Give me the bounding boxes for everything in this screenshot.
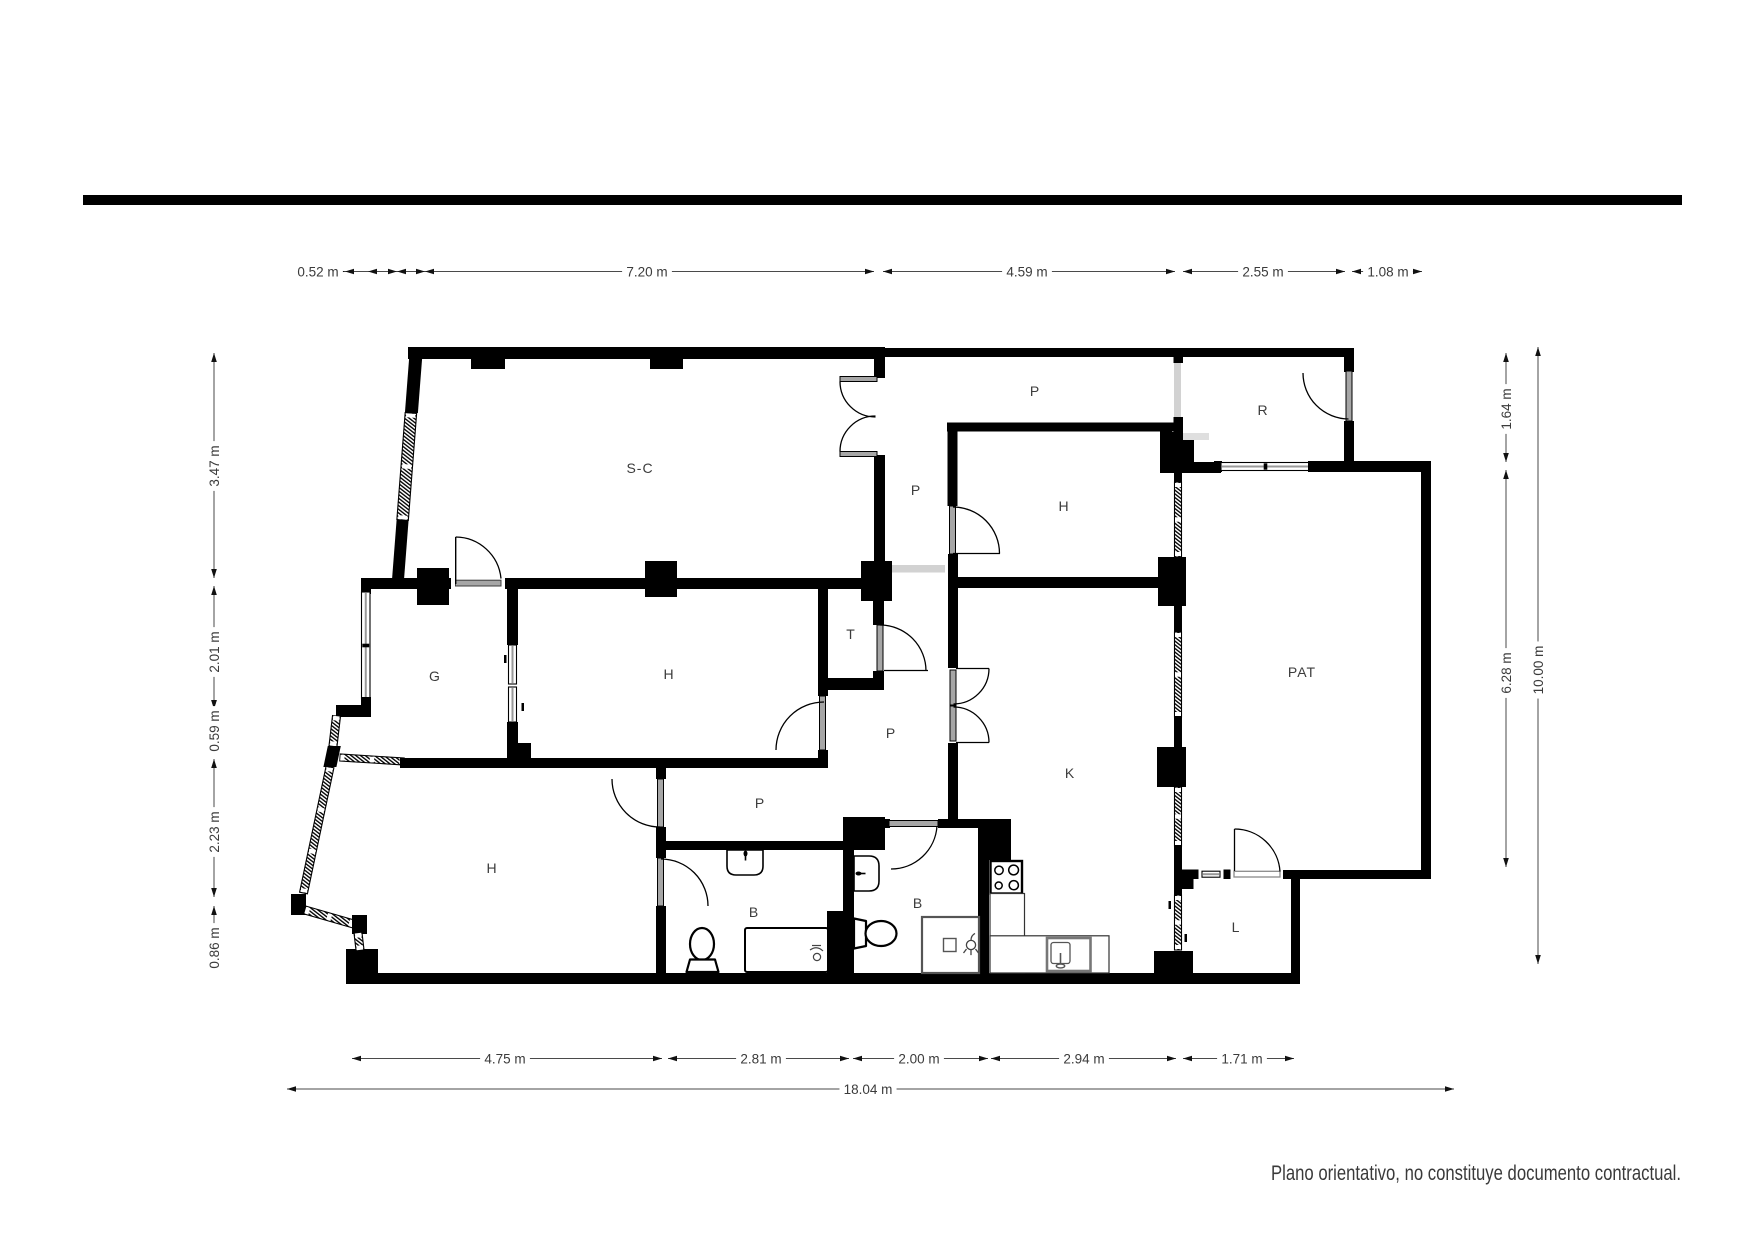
svg-text:2.23 m: 2.23 m bbox=[207, 811, 222, 852]
svg-text:7.20 m: 7.20 m bbox=[626, 265, 667, 280]
svg-text:P: P bbox=[1030, 383, 1040, 399]
svg-text:4.59 m: 4.59 m bbox=[1006, 265, 1047, 280]
svg-text:10.00 m: 10.00 m bbox=[1531, 646, 1546, 695]
svg-text:S-C: S-C bbox=[626, 460, 653, 476]
svg-text:18.04 m: 18.04 m bbox=[844, 1082, 893, 1097]
svg-text:0.59 m: 0.59 m bbox=[207, 710, 222, 751]
svg-text:B: B bbox=[749, 904, 759, 920]
svg-text:H: H bbox=[1058, 498, 1069, 514]
svg-text:L: L bbox=[1232, 919, 1241, 935]
svg-text:0.86 m: 0.86 m bbox=[207, 927, 222, 968]
svg-text:0.52 m: 0.52 m bbox=[297, 265, 338, 280]
svg-text:P: P bbox=[886, 725, 896, 741]
svg-text:1.71 m: 1.71 m bbox=[1221, 1052, 1262, 1067]
svg-text:P: P bbox=[755, 795, 765, 811]
svg-text:K: K bbox=[1065, 765, 1075, 781]
svg-text:2.55 m: 2.55 m bbox=[1242, 265, 1283, 280]
svg-text:PAT: PAT bbox=[1288, 664, 1316, 680]
svg-text:1.64 m: 1.64 m bbox=[1499, 388, 1514, 429]
svg-text:4.75 m: 4.75 m bbox=[484, 1052, 525, 1067]
svg-text:G: G bbox=[429, 668, 441, 684]
svg-text:3.47 m: 3.47 m bbox=[207, 445, 222, 486]
svg-text:R: R bbox=[1257, 402, 1268, 418]
svg-text:1.08 m: 1.08 m bbox=[1367, 265, 1408, 280]
svg-text:6.28 m: 6.28 m bbox=[1499, 652, 1514, 693]
svg-text:2.00 m: 2.00 m bbox=[898, 1052, 939, 1067]
svg-text:2.81 m: 2.81 m bbox=[740, 1052, 781, 1067]
svg-text:H: H bbox=[663, 666, 674, 682]
svg-text:2.01 m: 2.01 m bbox=[207, 631, 222, 672]
svg-text:H: H bbox=[486, 860, 497, 876]
svg-text:P: P bbox=[911, 482, 921, 498]
svg-text:B: B bbox=[913, 895, 923, 911]
svg-text:Plano orientativo, no constitu: Plano orientativo, no constituye documen… bbox=[1271, 1162, 1681, 1185]
svg-text:T: T bbox=[846, 626, 856, 642]
svg-text:2.94 m: 2.94 m bbox=[1063, 1052, 1104, 1067]
